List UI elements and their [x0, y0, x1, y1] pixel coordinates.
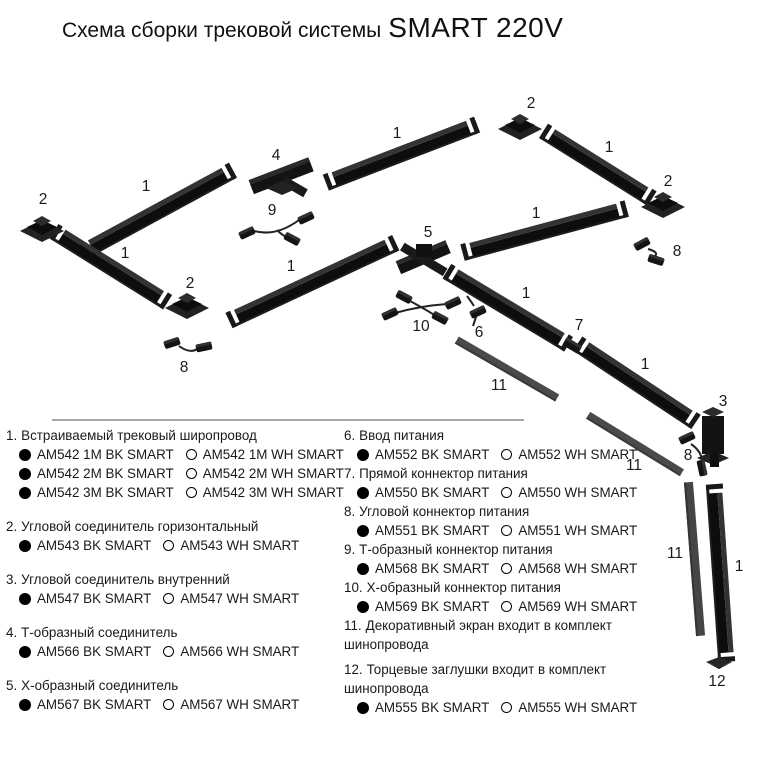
track-section-top-right [539, 124, 657, 206]
part-label: 1 [142, 178, 151, 195]
open-circle-icon [501, 449, 512, 460]
corner-connector-right [641, 192, 685, 218]
corner-power-connector-left [163, 337, 213, 353]
track-section-mid-right [460, 200, 629, 260]
legend-item-title: 9.Т-образный коннектор питания [344, 540, 640, 559]
part-label: 10 [412, 318, 430, 335]
product-row: AM568 BK SMART AM568 WH SMART [344, 559, 640, 578]
product-wh: AM542 3M WH SMART [203, 483, 344, 502]
product-bk: AM550 BK SMART [375, 483, 489, 502]
part-label: 4 [272, 147, 281, 164]
legend-item-3: 3.Угловой соединитель внутренний AM547 B… [6, 570, 340, 608]
open-circle-icon [163, 593, 174, 604]
product-wh: AM551 WH SMART [518, 521, 637, 540]
open-circle-icon [186, 468, 197, 479]
product-bk: AM569 BK SMART [375, 597, 489, 616]
legend-item-title: 1.Встраиваемый трековый широпровод [6, 426, 340, 445]
legend-item-title: 8.Угловой коннектор питания [344, 502, 640, 521]
product-row: AM555 BK SMART AM555 WH SMART [344, 698, 640, 717]
product-row: AM547 BK SMART AM547 WH SMART [6, 589, 340, 608]
product-row: AM551 BK SMART AM551 WH SMART [344, 521, 640, 540]
filled-circle-icon [19, 646, 31, 658]
legend-item-12: 12.Торцевые заглушки входит в комплект ш… [344, 660, 640, 717]
corner-connector-left [20, 216, 64, 242]
product-bk: AM551 BK SMART [375, 521, 489, 540]
filled-circle-icon [357, 563, 369, 575]
product-bk: AM542 3M BK SMART [37, 483, 174, 502]
product-wh: AM555 WH SMART [518, 698, 637, 717]
product-row: AM569 BK SMART AM569 WH SMART [344, 597, 640, 616]
filled-circle-icon [357, 702, 369, 714]
legend-item-1: 1.Встраиваемый трековый широпровод AM542… [6, 426, 340, 502]
legend-item-title: 6.Ввод питания [344, 426, 640, 445]
part-label: 9 [268, 202, 277, 219]
filled-circle-icon [19, 593, 31, 605]
x-connector [396, 240, 451, 276]
legend-item-title: 11.Декоративный экран входит в комплект … [344, 616, 640, 654]
part-label: 12 [708, 673, 725, 690]
part-label: 8 [673, 243, 682, 260]
product-bk: AM547 BK SMART [37, 589, 151, 608]
open-circle-icon [501, 563, 512, 574]
part-label: 7 [575, 317, 584, 334]
legend-item-4: 4.Т-образный соединитель AM566 BK SMART … [6, 623, 340, 661]
track-section-top-left [80, 163, 238, 259]
t-power-connector [238, 211, 315, 246]
product-bk: AM567 BK SMART [37, 695, 151, 714]
product-row: AM543 BK SMART AM543 WH SMART [6, 536, 340, 555]
part-label: 1 [393, 125, 402, 142]
product-bk: AM555 BK SMART [375, 698, 489, 717]
product-wh: AM566 WH SMART [180, 642, 299, 661]
part-label: 2 [39, 191, 48, 208]
part-label: 1 [532, 205, 541, 222]
filled-circle-icon [19, 540, 31, 552]
legend-item-title: 7.Прямой коннектор питания [344, 464, 640, 483]
legend-item-8: 8.Угловой коннектор питания AM551 BK SMA… [344, 502, 640, 540]
legend-item-title: 2.Угловой соединитель горизонтальный [6, 517, 340, 536]
product-bk: AM552 BK SMART [375, 445, 489, 464]
t-connector [249, 157, 314, 197]
legend-item-title: 12.Торцевые заглушки входит в комплект ш… [344, 660, 640, 698]
part-label: 1 [287, 258, 296, 275]
legend-item-10: 10.Х-образный коннектор питания AM569 BK… [344, 578, 640, 616]
product-row: AM550 BK SMART AM550 WH SMART [344, 483, 640, 502]
product-wh: AM542 2M WH SMART [203, 464, 344, 483]
legend-item-title: 4.Т-образный соединитель [6, 623, 340, 642]
product-wh: AM543 WH SMART [180, 536, 299, 555]
product-wh: AM542 1M WH SMART [203, 445, 344, 464]
part-label: 6 [475, 324, 484, 341]
filled-circle-icon [357, 449, 369, 461]
corner-connector-top [498, 114, 542, 140]
open-circle-icon [501, 525, 512, 536]
product-row: AM566 BK SMART AM566 WH SMART [6, 642, 340, 661]
product-wh: AM552 WH SMART [518, 445, 637, 464]
legend-item-title: 5.Х-образный соединитель [6, 676, 340, 695]
open-circle-icon [163, 699, 174, 710]
open-circle-icon [163, 646, 174, 657]
legend-item-11: 11.Декоративный экран входит в комплект … [344, 616, 640, 654]
part-label: 5 [424, 224, 433, 241]
legend-item-title: 10.Х-образный коннектор питания [344, 578, 640, 597]
decorative-screen-3 [684, 482, 705, 636]
open-circle-icon [501, 487, 512, 498]
part-label: 3 [719, 393, 728, 410]
legend-item-5: 5.Х-образный соединитель AM567 BK SMART … [6, 676, 340, 714]
part-label: 2 [186, 275, 195, 292]
part-label: 8 [684, 447, 693, 464]
product-row: AM567 BK SMART AM567 WH SMART [6, 695, 340, 714]
legend-item-2: 2.Угловой соединитель горизонтальный AM5… [6, 517, 340, 555]
legend-item-6: 6.Ввод питания AM552 BK SMART AM552 WH S… [344, 426, 640, 464]
filled-circle-icon [19, 699, 31, 711]
corner-connector-bottom [165, 293, 209, 319]
product-wh: AM568 WH SMART [518, 559, 637, 578]
product-row: AM542 2M BK SMART AM542 2M WH SMART [6, 464, 340, 483]
legend-item-7: 7.Прямой коннектор питания AM550 BK SMAR… [344, 464, 640, 502]
legend-right-column: 6.Ввод питания AM552 BK SMART AM552 WH S… [344, 426, 640, 717]
product-bk: AM542 1M BK SMART [37, 445, 174, 464]
part-label: 8 [180, 359, 189, 376]
corner-power-connector-right [633, 237, 665, 267]
part-label: 1 [121, 245, 130, 262]
part-label: 1 [605, 139, 614, 156]
filled-circle-icon [19, 449, 31, 461]
part-label: 2 [527, 95, 536, 112]
product-row: AM542 1M BK SMART AM542 1M WH SMART [6, 445, 340, 464]
legend-item-9: 9.Т-образный коннектор питания AM568 BK … [344, 540, 640, 578]
product-wh: AM547 WH SMART [180, 589, 299, 608]
product-bk: AM543 BK SMART [37, 536, 151, 555]
product-bk: AM542 2M BK SMART [37, 464, 174, 483]
open-circle-icon [163, 540, 174, 551]
track-section-top-mid [323, 117, 480, 191]
open-circle-icon [501, 702, 512, 713]
open-circle-icon [501, 601, 512, 612]
part-label: 11 [491, 377, 507, 394]
open-circle-icon [186, 449, 197, 460]
filled-circle-icon [357, 525, 369, 537]
legend-item-title: 3.Угловой соединитель внутренний [6, 570, 340, 589]
track-section-center [225, 235, 399, 328]
track-section-vertical [706, 484, 735, 663]
filled-circle-icon [357, 601, 369, 613]
filled-circle-icon [19, 468, 31, 480]
product-row: AM552 BK SMART AM552 WH SMART [344, 445, 640, 464]
filled-circle-icon [19, 487, 31, 499]
part-label: 2 [664, 173, 673, 190]
product-bk: AM568 BK SMART [375, 559, 489, 578]
part-label: 1 [522, 285, 531, 302]
part-label: 1 [735, 558, 744, 575]
track-section-lower-left [443, 264, 573, 352]
product-row: AM542 3M BK SMART AM542 3M WH SMART [6, 483, 340, 502]
filled-circle-icon [357, 487, 369, 499]
product-wh: AM569 WH SMART [518, 597, 637, 616]
part-label: 11 [667, 545, 683, 562]
open-circle-icon [186, 487, 197, 498]
legend-left-column: 1.Встраиваемый трековый широпровод AM542… [6, 426, 340, 729]
product-bk: AM566 BK SMART [37, 642, 151, 661]
part-label: 1 [641, 356, 650, 373]
product-wh: AM567 WH SMART [180, 695, 299, 714]
product-wh: AM550 WH SMART [518, 483, 637, 502]
